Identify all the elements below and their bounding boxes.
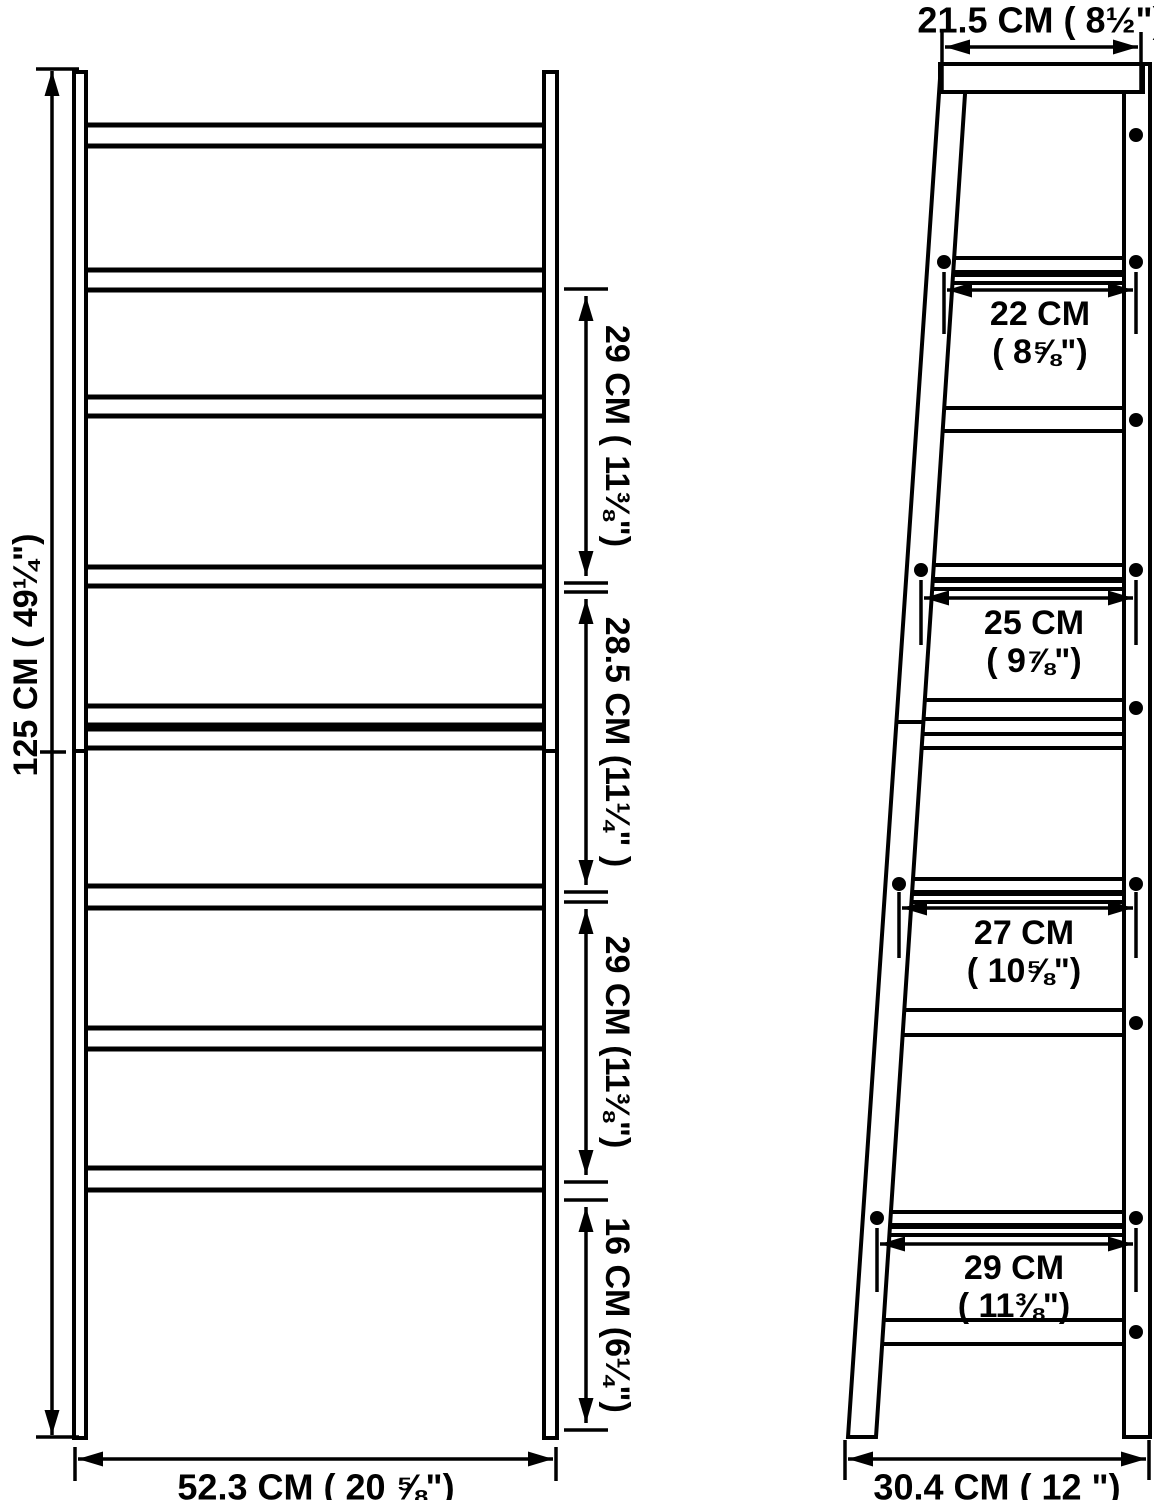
shelf-depth-dimension-2: 25 CM ( 9⅞"): [921, 580, 1136, 680]
shelf-band: [84, 397, 546, 416]
shelf-depth-cm: 27 CM: [974, 914, 1074, 952]
shelf-depth-inch: ( 10⅝"): [967, 952, 1081, 990]
screw-dot: [1129, 128, 1143, 142]
shelf-band: [84, 729, 546, 748]
shelf-band: [84, 886, 546, 908]
shelf-depth-dimension-3: 27 CM ( 10⅝"): [899, 892, 1136, 990]
front-left-rail: [74, 72, 86, 1438]
shelf-band: [84, 1028, 546, 1049]
ladder-shelf-dimension-diagram: 125 CM ( 49¼") 29 CM ( 11⅜") 28.5 CM (11…: [0, 0, 1154, 1500]
side-crossbar: [921, 700, 1130, 719]
side-shelf-1-support: [950, 275, 1130, 283]
height-label: 125 CM ( 49¼"): [7, 534, 45, 777]
shelf-band: [84, 567, 546, 586]
width-dimension: 52.3 CM ( 20 ⅝"): [75, 1447, 556, 1500]
base-depth-label: 30.4 CM ( 12 "): [873, 1467, 1120, 1500]
diagram-svg: 125 CM ( 49¼") 29 CM ( 11⅜") 28.5 CM (11…: [0, 0, 1154, 1500]
side-shelf-2-support: [929, 581, 1130, 589]
side-crossbar: [919, 734, 1130, 748]
tier-gap-label-1: 29 CM ( 11⅜"): [598, 325, 636, 547]
shelf-band: [84, 706, 546, 725]
shelf-depth-dimension-1: 22 CM ( 8⅝"): [944, 272, 1136, 371]
screw-dot: [1129, 1211, 1143, 1225]
shelf-depth-inch: ( 11⅜"): [958, 1287, 1071, 1325]
screw-dot: [870, 1211, 884, 1225]
side-crossbar: [940, 408, 1130, 431]
shelf-band: [84, 270, 546, 290]
tier-gap-dimensions: 29 CM ( 11⅜") 28.5 CM (11¼" ) 29 CM (11⅜…: [564, 289, 636, 1430]
front-right-rail: [544, 72, 557, 1438]
side-top-board: [940, 64, 1143, 92]
screw-dot: [914, 563, 928, 577]
shelf-depth-inch: ( 9⅞"): [986, 642, 1081, 680]
screw-dot: [1129, 877, 1143, 891]
front-view: [72, 72, 559, 1438]
side-view: [848, 64, 1150, 1437]
tier-gap-label-3: 29 CM (11⅜"): [598, 936, 636, 1149]
side-shelf-4-support: [887, 1227, 1130, 1235]
screw-dot: [1129, 255, 1143, 269]
shelf-depth-cm: 29 CM: [964, 1249, 1064, 1287]
screw-dot: [1129, 563, 1143, 577]
side-shelf-3: [909, 879, 1130, 892]
shelf-band: [84, 1168, 546, 1190]
width-label: 52.3 CM ( 20 ⅝"): [177, 1467, 454, 1500]
shelf-depth-cm: 25 CM: [984, 604, 1084, 642]
tier-gap-label-4: 16 CM (6¼"): [598, 1217, 636, 1413]
side-shelf-3-support: [909, 894, 1130, 902]
height-dimension: 125 CM ( 49¼"): [7, 69, 79, 1437]
shelf-depth-inch: ( 8⅝"): [992, 333, 1087, 371]
screw-dot: [1129, 701, 1143, 715]
side-shelf-4: [887, 1212, 1130, 1225]
side-crossbar: [901, 1010, 1130, 1035]
base-depth-dimension: 30.4 CM ( 12 "): [845, 1440, 1149, 1500]
screw-dot: [1129, 1325, 1143, 1339]
screw-dot: [1129, 1016, 1143, 1030]
shelf-depth-cm: 22 CM: [990, 295, 1090, 333]
side-shelf-1: [950, 258, 1130, 272]
screw-dot: [892, 877, 906, 891]
top-depth-label: 21.5 CM ( 8½"): [917, 0, 1154, 41]
side-shelf-2: [929, 565, 1130, 579]
shelf-depth-dimension-4: 29 CM ( 11⅜"): [877, 1228, 1136, 1325]
shelf-band: [84, 125, 546, 146]
screw-dot: [1129, 413, 1143, 427]
tier-gap-label-2: 28.5 CM (11¼" ): [598, 617, 636, 867]
screw-dot: [937, 255, 951, 269]
